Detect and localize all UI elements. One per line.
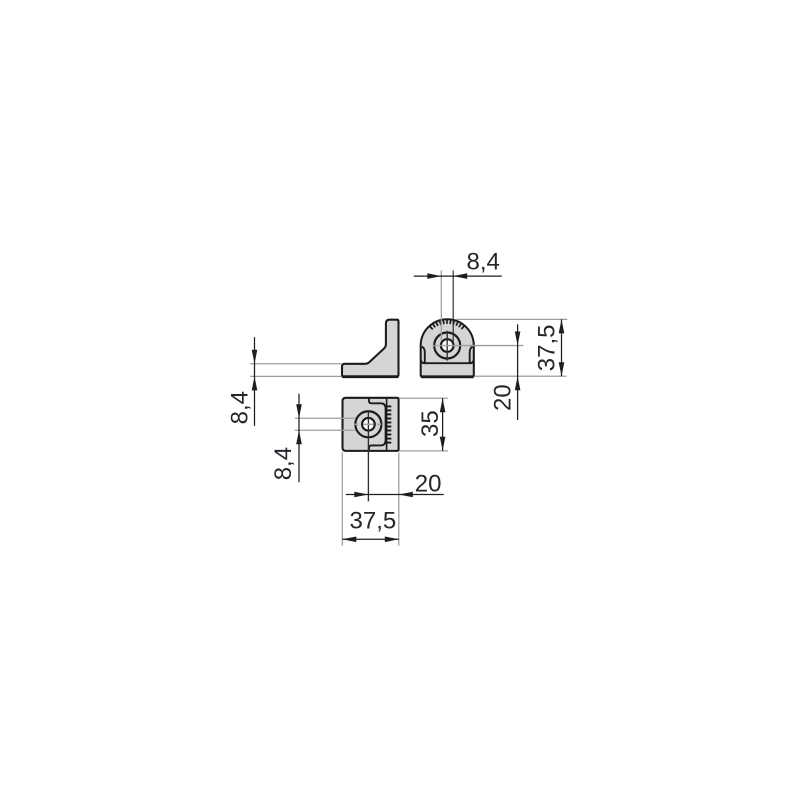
svg-text:8,4: 8,4	[270, 447, 297, 480]
svg-text:20: 20	[490, 384, 517, 411]
svg-text:20: 20	[415, 470, 442, 497]
svg-text:8,4: 8,4	[467, 248, 500, 275]
svg-text:8,4: 8,4	[227, 391, 254, 424]
svg-text:35: 35	[417, 410, 444, 437]
svg-text:37,5: 37,5	[350, 508, 397, 535]
svg-text:37,5: 37,5	[534, 324, 561, 371]
